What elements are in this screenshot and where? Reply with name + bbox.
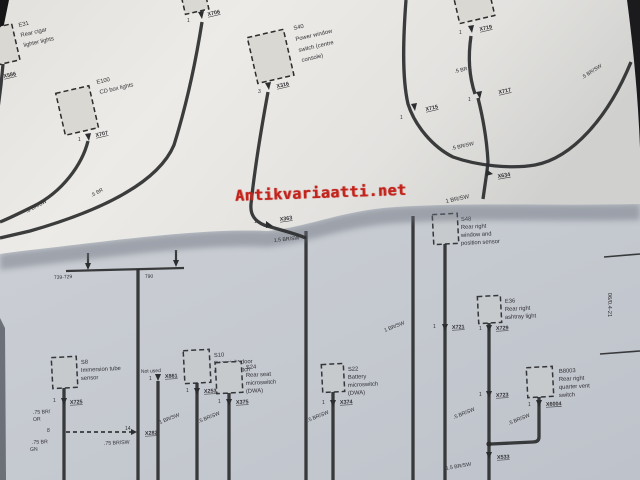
- connector-label-x533: X533: [497, 454, 510, 461]
- pin-number: 1: [400, 115, 403, 121]
- component-desc: microswitch: [348, 381, 379, 389]
- connector-label-x375: X375: [236, 399, 249, 406]
- wire-label: GN: [30, 447, 38, 453]
- component-desc: position sensor: [461, 239, 500, 247]
- wire-label: 1.5 BR/SW: [445, 462, 471, 472]
- page-edge-code: 06/0.4-21: [606, 293, 612, 318]
- component-desc: Rear seat: [246, 372, 272, 379]
- pin-number: 1: [433, 324, 436, 330]
- pin-number: 1: [479, 326, 482, 332]
- pin-number: 3: [258, 89, 261, 95]
- note-not-used: Not used: [141, 368, 162, 375]
- component-box-s8: [51, 356, 78, 388]
- pin-number: 1: [322, 400, 325, 406]
- component-id: B8003: [559, 368, 576, 375]
- diagram-photo-svg: 739-729 790 S8 Immersion tube sensor 1 X…: [0, 0, 640, 480]
- component-id: S8: [81, 360, 88, 366]
- component-desc: Immersion tube: [81, 366, 121, 374]
- pin-number: 1: [218, 399, 221, 405]
- page-edge-marks: 06/0.4-21: [600, 254, 640, 354]
- pin-number: 1: [187, 18, 190, 24]
- component-id: S10: [214, 352, 225, 359]
- connector-label-x729: X729: [496, 325, 509, 332]
- component-box-s10: [183, 349, 211, 383]
- wire-label: 1 BR/SW: [384, 320, 406, 334]
- pin-number: 1: [53, 398, 56, 404]
- component-e36: E36 Rear right ashtray light 1 X729 1 X7…: [445, 295, 536, 480]
- component-desc: (DWA): [348, 390, 366, 397]
- component-desc: Rear right: [559, 376, 585, 383]
- component-desc: (DWA): [246, 388, 264, 395]
- wire-label: .5 BR/SW: [453, 407, 476, 421]
- component-desc: switch: [559, 392, 575, 399]
- component-desc: sensor: [81, 375, 99, 382]
- component-box-b8003: [526, 366, 554, 397]
- component-id: E36: [505, 298, 516, 305]
- component-desc: microswitch: [246, 379, 277, 387]
- component-box-s24: [215, 361, 243, 393]
- connector-label-x282: X282: [145, 430, 158, 437]
- component-desc: Battery: [348, 374, 367, 381]
- photo-edge-left: [0, 318, 6, 480]
- pin-number: 1: [149, 376, 152, 382]
- wire-label: .5 BR/SW: [307, 410, 330, 424]
- connector-x282: 14 X282: [66, 426, 158, 437]
- wire-label: .5 BR/SW: [508, 413, 531, 427]
- connector-label-x6004: X6004: [546, 401, 562, 408]
- component-s24: S24 Rear seat microswitch (DWA) 1 X375: [215, 361, 276, 480]
- photo-of-wiring-diagram: 739-729 790 S8 Immersion tube sensor 1 X…: [0, 0, 640, 480]
- wire-label: .75 BR/: [33, 409, 51, 416]
- pin-number: 1: [479, 392, 482, 398]
- component-s22: S22 Battery microswitch (DWA) 1 X374: [321, 363, 378, 480]
- page-ref-right: 790: [145, 274, 154, 280]
- connector-label-x723: X723: [496, 392, 509, 399]
- wire-label: .75 BR/SW: [104, 440, 130, 447]
- component-box-s22: [321, 363, 344, 392]
- connector-x861: Not used 1 X861 1 BR/SW: [141, 368, 181, 480]
- pin-number: 1: [254, 219, 257, 225]
- page-ref-left: 739-729: [54, 274, 73, 281]
- connector-label-x253: X253: [204, 388, 217, 395]
- component-desc: Rear right: [505, 306, 531, 313]
- component-desc: Rear right: [461, 224, 487, 231]
- wire-label: .5 BR/SW: [198, 411, 221, 425]
- pin-number: 1: [78, 137, 81, 143]
- wire-label: .75 BR: [32, 439, 48, 446]
- pin-number: 1: [528, 402, 531, 408]
- component-id: S24: [246, 364, 257, 371]
- pin-number: 8: [47, 428, 50, 434]
- connector-label-x861: X861: [165, 373, 178, 380]
- component-desc: window and: [460, 231, 492, 239]
- wire-label: OR: [33, 417, 41, 423]
- connector-label-x374: X374: [340, 399, 353, 406]
- pin-number: 1: [468, 97, 471, 103]
- component-box-e36: [477, 295, 501, 323]
- wire-label: 1 BR/SW: [159, 412, 181, 426]
- upper-page: E31 Rear cigar lighter lights X586 E100 …: [0, 0, 640, 270]
- connector-label-x721: X721: [452, 324, 465, 331]
- pin-number: 1: [459, 30, 462, 36]
- component-desc: ashtray light: [505, 313, 537, 321]
- component-desc: quarter vent: [559, 383, 591, 391]
- component-id: S22: [348, 366, 359, 373]
- component-b8003: B8003 Rear right quarter vent switch 1 X…: [491, 366, 590, 444]
- pin-number: 1: [186, 388, 189, 394]
- wire-junction-dot: [486, 441, 491, 446]
- connector-label-x725: X725: [70, 399, 83, 406]
- component-s8: S8 Immersion tube sensor 1 X725 8 .75 BR…: [30, 356, 130, 480]
- pin-number: 14: [125, 426, 131, 432]
